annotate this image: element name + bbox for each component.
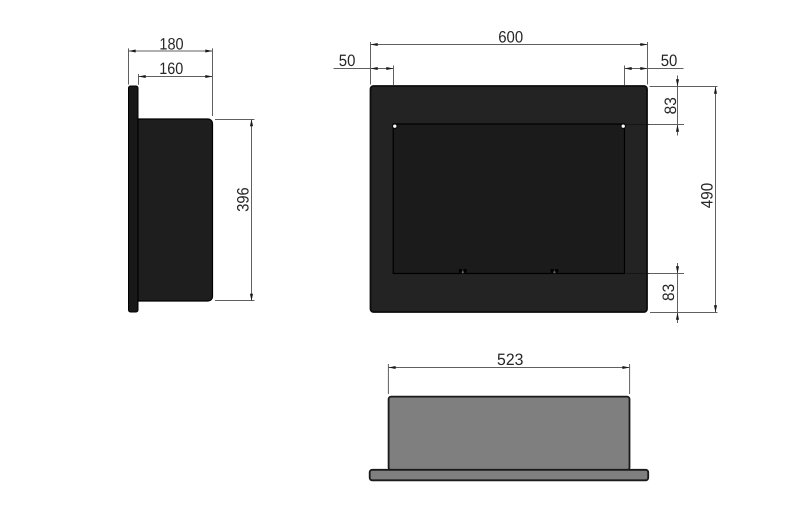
svg-text:523: 523: [497, 351, 523, 369]
svg-text:50: 50: [339, 52, 356, 70]
svg-text:50: 50: [661, 52, 678, 70]
svg-text:490: 490: [699, 183, 717, 208]
svg-text:600: 600: [498, 29, 523, 47]
svg-text:180: 180: [159, 35, 183, 53]
svg-text:396: 396: [235, 187, 253, 211]
svg-text:160: 160: [159, 60, 183, 78]
svg-text:83: 83: [662, 97, 680, 114]
svg-text:83: 83: [660, 284, 678, 301]
